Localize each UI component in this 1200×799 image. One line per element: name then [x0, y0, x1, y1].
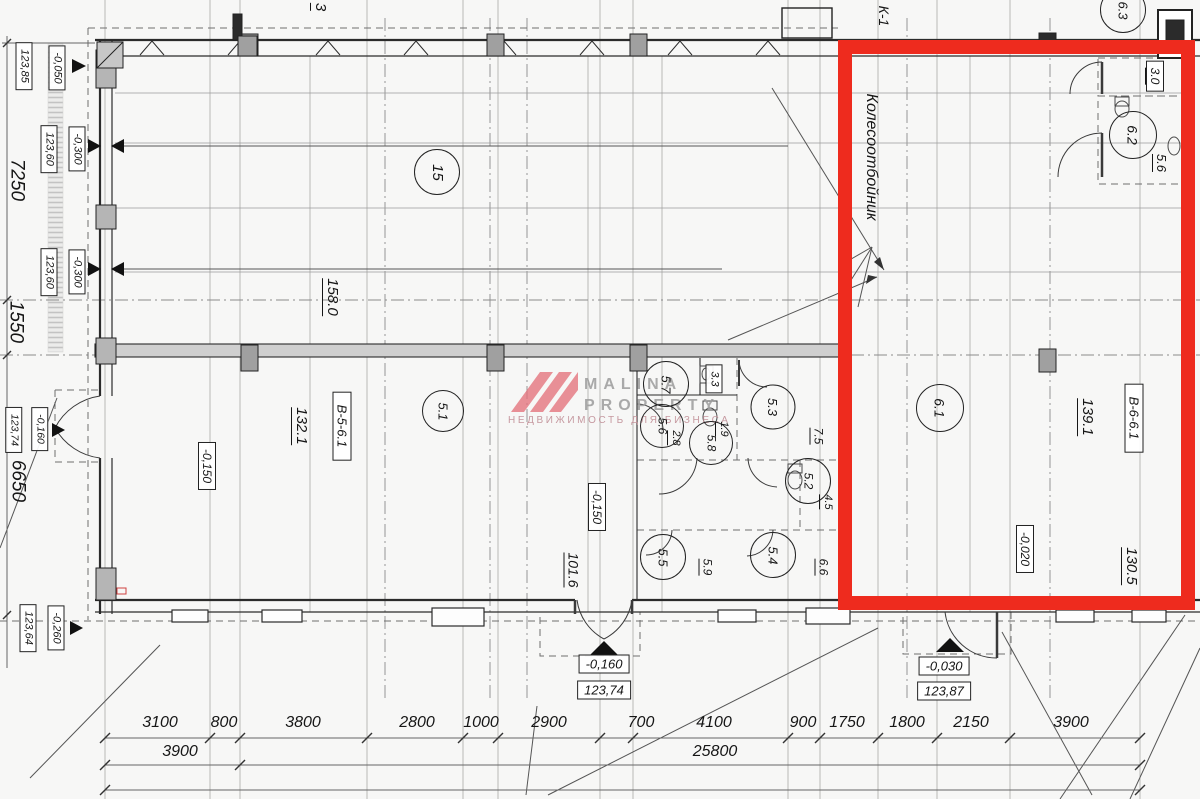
- area-label-132-1: 132.1: [291, 407, 309, 445]
- dim-3900-total: 3900: [162, 744, 198, 760]
- red-notation-mark: [117, 588, 126, 594]
- watermark-logo: [511, 372, 578, 412]
- elevation-value: 123,74: [6, 407, 23, 453]
- grid-lines-vertical: [105, 0, 1140, 799]
- area-label-2-8: 2.8: [667, 430, 681, 445]
- area-label-158: 158.0: [322, 278, 340, 316]
- side-dimension-6650: 6650: [9, 460, 28, 502]
- dim-900: 900: [790, 715, 817, 731]
- elevation-value: 123,60: [41, 248, 58, 296]
- room-number-6-2: 6.2: [1109, 111, 1157, 159]
- room-number-6-1: 6.1: [916, 384, 964, 432]
- elevation-offset: -0,300: [69, 249, 86, 294]
- dim-800: 800: [211, 715, 238, 731]
- elevation-value: 123,60: [41, 125, 58, 173]
- dim-1000: 1000: [463, 715, 499, 731]
- area-label-4-5: 4.5: [819, 494, 833, 509]
- area-label-5-9: 5.9: [699, 559, 714, 576]
- dim-4100: 4100: [696, 715, 732, 731]
- dim-3100: 3100: [142, 715, 178, 731]
- dim-1750: 1750: [829, 715, 865, 731]
- floor-level-mark: -0,150: [588, 483, 606, 531]
- area-label-139-1: 139.1: [1077, 398, 1095, 436]
- elevation-value: 123,64: [20, 604, 37, 652]
- side-dimension-1550: 1550: [7, 301, 26, 343]
- unit-label-b5-6-1: В-5-6.1: [333, 392, 352, 461]
- room-number-5-5: 5.5: [640, 534, 686, 580]
- area-label-5-6: 5.6: [1152, 154, 1168, 172]
- area-label-1-9: 1.9: [715, 421, 729, 436]
- floor-level-mark: -0,020: [1016, 525, 1034, 573]
- axis-label-3: 3: [310, 3, 328, 11]
- entry-elevation: 123,87: [917, 682, 971, 701]
- room-number-5-4: 5.4: [750, 532, 796, 578]
- room-number-15: 15: [414, 149, 460, 195]
- elevation-offset: -0,050: [49, 45, 66, 90]
- dim-3900: 3900: [1053, 715, 1089, 731]
- area-label-3-0: 3.0: [1146, 61, 1164, 92]
- entry-elevation: 123,74: [577, 681, 631, 700]
- unit-label-b6-6-1: В-6-6.1: [1125, 384, 1144, 453]
- dim-25800-total: 25800: [693, 744, 738, 760]
- side-dimension-7250: 7250: [8, 159, 27, 201]
- entry-offset: -0,160: [579, 655, 630, 674]
- parking-lines: [115, 93, 1183, 272]
- entrance-marker-icons: [590, 638, 964, 655]
- floor-plan-canvas: MALINA PROPERTY НЕДВИЖИМОСТЬ ДЛЯ БИЗНЕСА…: [0, 0, 1200, 799]
- axis-label-k1: К-1: [877, 6, 891, 27]
- area-label-3-3: 3.3: [706, 364, 723, 393]
- area-label-101-6: 101.6: [564, 552, 581, 587]
- walls: [95, 40, 1200, 614]
- floor-level-mark: -0,150: [198, 442, 216, 490]
- elevation-value: 123,85: [16, 42, 33, 90]
- elevation-offset: -0,160: [32, 407, 49, 451]
- dim-2150: 2150: [953, 715, 989, 731]
- room-number-5-1: 5.1: [422, 390, 464, 432]
- elevation-offset: -0,300: [69, 126, 86, 171]
- floor-plan-linework: [0, 0, 1200, 799]
- area-label-130-5: 130.5: [1121, 547, 1139, 585]
- note-wheel-stop: Колесоотбойник: [863, 94, 879, 221]
- dim-1800: 1800: [889, 715, 925, 731]
- dim-700: 700: [628, 715, 655, 731]
- area-label-6-6: 6.6: [815, 559, 830, 576]
- pilasters: [172, 608, 1166, 626]
- room-number-5-7: 5.7: [643, 361, 689, 407]
- dim-2800: 2800: [399, 715, 435, 731]
- room-number-5-3: 5.3: [751, 385, 796, 430]
- dimension-ticks: [3, 39, 1145, 795]
- columns: [96, 8, 1192, 600]
- elevation-offset: -0,260: [48, 605, 65, 650]
- dimension-lines: [2, 36, 1140, 790]
- dim-3800: 3800: [285, 715, 321, 731]
- area-label-7-5: 7.5: [810, 428, 825, 445]
- dim-2900: 2900: [531, 715, 567, 731]
- entry-offset: -0,030: [919, 657, 970, 676]
